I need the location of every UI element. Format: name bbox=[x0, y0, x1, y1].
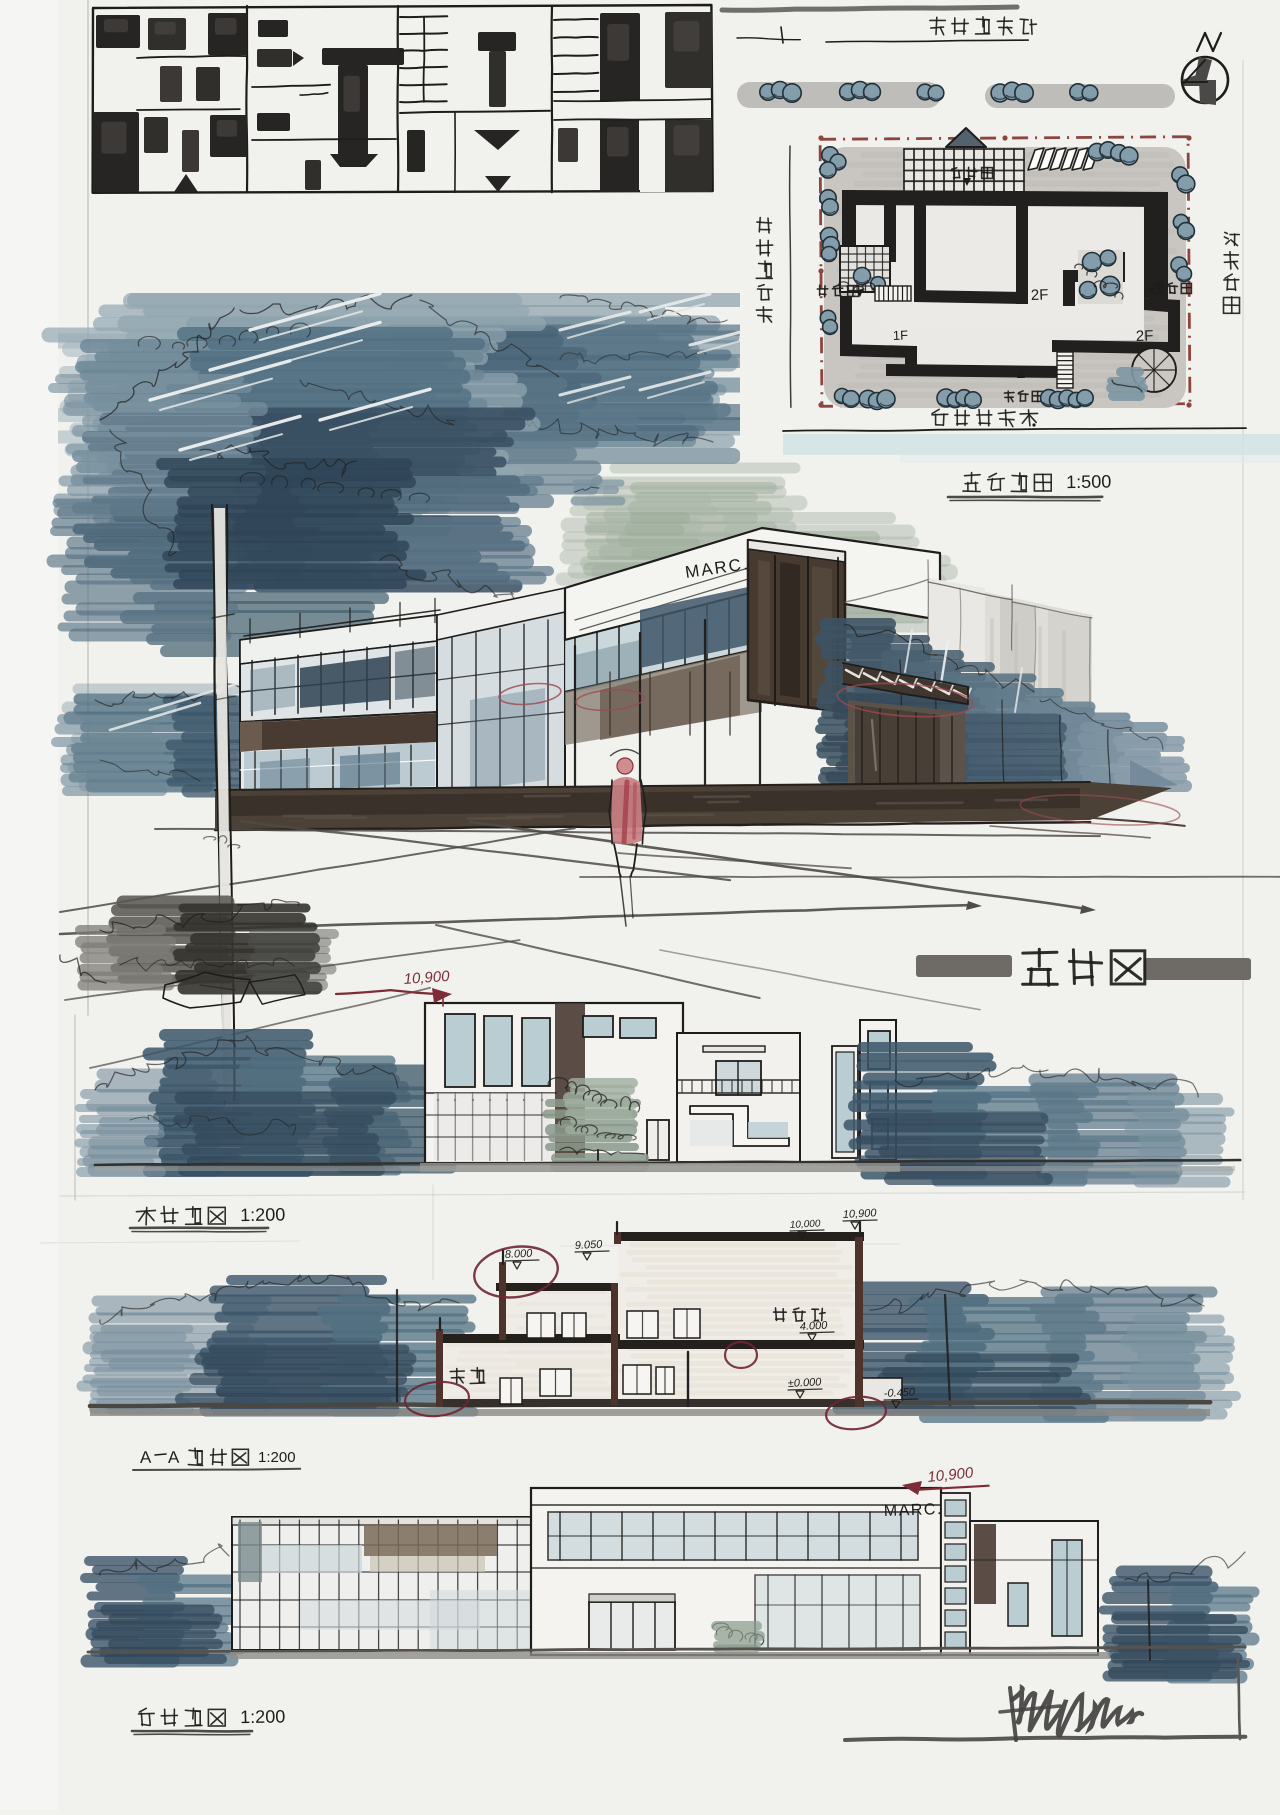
svg-text:2F: 2F bbox=[1031, 286, 1049, 304]
svg-text:A: A bbox=[168, 1448, 180, 1467]
svg-text:1:200: 1:200 bbox=[240, 1706, 285, 1727]
svg-text:1:500: 1:500 bbox=[1066, 471, 1111, 492]
svg-text:10,900: 10,900 bbox=[843, 1207, 878, 1221]
svg-text:A: A bbox=[140, 1448, 152, 1467]
svg-text:8.000: 8.000 bbox=[505, 1248, 534, 1261]
svg-text:1F: 1F bbox=[893, 327, 909, 343]
svg-text:-0.450: -0.450 bbox=[884, 1386, 917, 1400]
svg-text:10,900: 10,900 bbox=[403, 968, 451, 988]
svg-text:1:200: 1:200 bbox=[240, 1204, 285, 1225]
svg-text:10,000: 10,000 bbox=[790, 1218, 822, 1231]
svg-text:2F: 2F bbox=[1136, 327, 1154, 345]
svg-text:±0.000: ±0.000 bbox=[788, 1376, 823, 1390]
svg-text:9.050: 9.050 bbox=[575, 1239, 604, 1252]
svg-text:1:200: 1:200 bbox=[258, 1449, 296, 1466]
svg-text:MARC.: MARC. bbox=[884, 1501, 944, 1520]
